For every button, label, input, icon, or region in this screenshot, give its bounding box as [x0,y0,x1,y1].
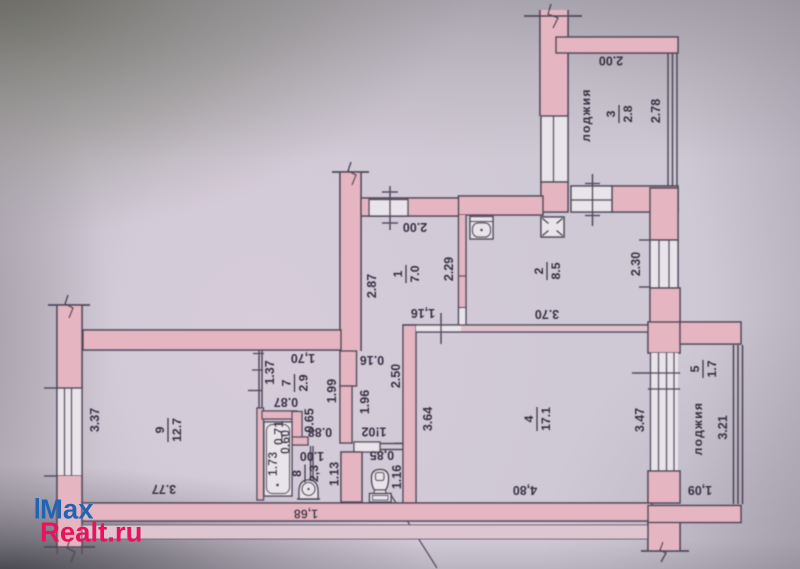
svg-text:3.70: 3.70 [535,307,559,321]
svg-text:3.37: 3.37 [88,408,102,432]
svg-text:7: 7 [280,379,294,386]
svg-text:0.87: 0.87 [274,395,298,409]
svg-text:2.9: 2.9 [297,374,311,391]
svg-text:1,09: 1,09 [688,483,712,497]
svg-text:1.7: 1.7 [705,360,719,377]
svg-text:3: 3 [604,110,618,117]
svg-text:1,70: 1,70 [291,351,315,365]
svg-text:7.0: 7.0 [408,265,422,282]
svg-text:2.8: 2.8 [621,105,635,122]
svg-text:0.88: 0.88 [308,425,332,439]
svg-text:1.96: 1.96 [358,390,372,414]
svg-text:0.60: 0.60 [279,430,293,454]
svg-text:2.00: 2.00 [403,220,427,234]
svg-text:лоджия: лоджия [579,88,593,142]
svg-text:9: 9 [153,426,167,433]
svg-text:1,16: 1,16 [411,306,435,320]
svg-text:4,80: 4,80 [513,483,537,497]
svg-text:Realt.ru: Realt.ru [40,517,142,548]
svg-text:2: 2 [532,267,546,274]
svg-text:1: 1 [391,270,405,277]
svg-text:2.30: 2.30 [629,252,643,276]
svg-text:12.7: 12.7 [170,418,184,442]
svg-text:1.99: 1.99 [325,379,339,403]
svg-text:4: 4 [522,415,536,422]
svg-text:2.00: 2.00 [599,54,623,68]
svg-text:2.29: 2.29 [442,257,456,281]
svg-text:5: 5 [688,365,702,372]
svg-text:8: 8 [290,470,304,477]
svg-text:17.1: 17.1 [539,407,553,431]
svg-text:2.87: 2.87 [365,274,379,298]
svg-text:8.5: 8.5 [549,262,563,279]
svg-text:1.73: 1.73 [266,452,280,476]
svg-text:3.64: 3.64 [421,407,435,431]
svg-text:3.21: 3.21 [716,415,730,439]
svg-text:0.16: 0.16 [360,353,384,367]
svg-text:2.50: 2.50 [389,364,403,388]
svg-text:1.37: 1.37 [263,360,277,384]
svg-text:1.16: 1.16 [390,465,404,489]
svg-text:2,3: 2,3 [307,465,321,482]
svg-text:лоджия: лоджия [691,402,705,456]
svg-text:3.77: 3.77 [152,482,176,496]
svg-text:1,68: 1,68 [294,507,318,521]
svg-text:2.78: 2.78 [649,99,663,123]
svg-text:1.00: 1.00 [300,449,324,463]
svg-text:1.13: 1.13 [328,462,342,486]
svg-text:0,85: 0,85 [370,448,394,462]
svg-text:1!02: 1!02 [361,425,386,439]
svg-text:3.47: 3.47 [633,408,647,432]
